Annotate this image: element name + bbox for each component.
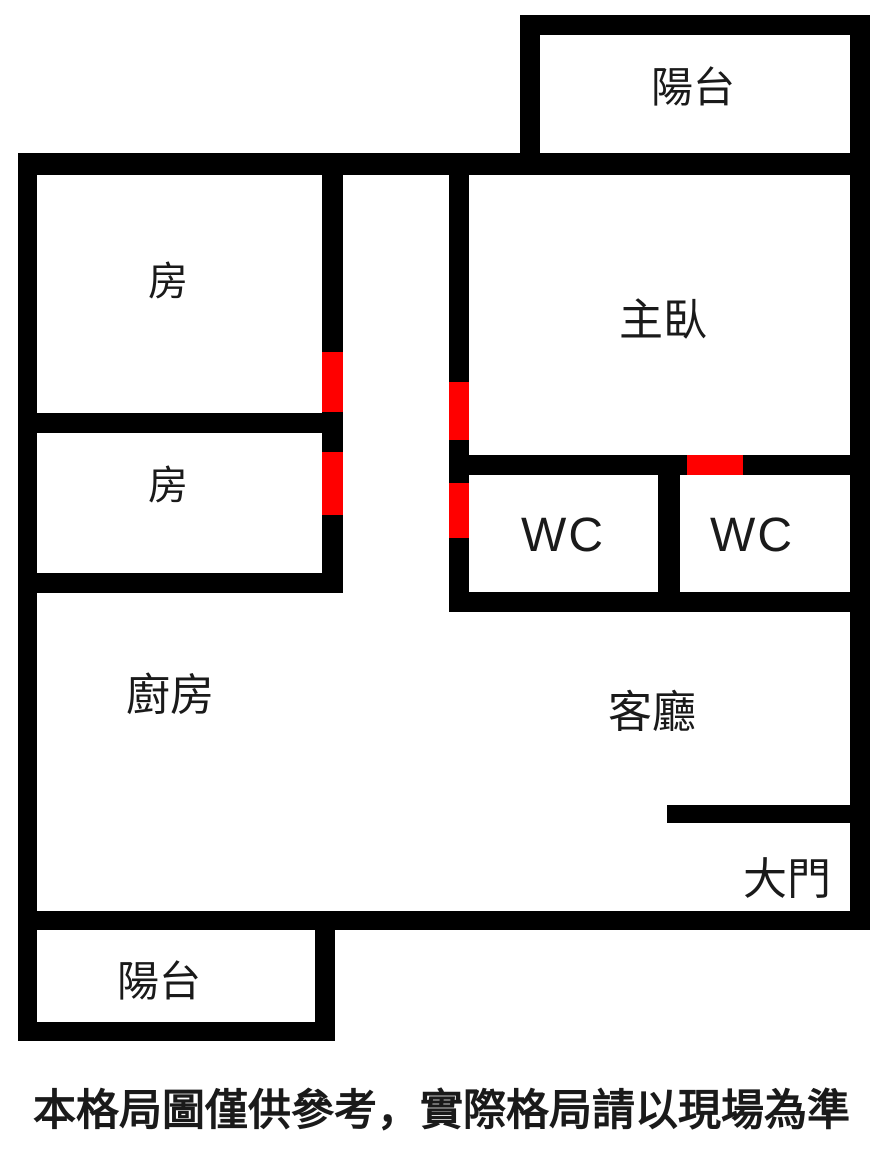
wall-outer-top [18,153,870,175]
room-label-bedroom-1: 房 [148,262,188,302]
wall-entry-stub [667,805,850,823]
wall-top-balcony-left [520,15,540,165]
room-label-bedroom-2: 房 [148,466,188,506]
wall-outer-bottom [18,911,870,930]
wall-top-balcony-top [520,15,870,35]
wall-wc-divider [658,475,680,592]
room-label-balcony-bottom: 陽台 [117,961,201,1003]
door-master-marker [449,382,469,440]
wall-bottom-balcony-bottom [18,1022,335,1041]
wall-bedrooms-divider [18,413,343,433]
room-label-kitchen: 廚房 [126,674,214,718]
room-label-wc-2: WC [710,512,794,560]
room-label-master-bedroom: 主臥 [619,299,707,343]
door-wc-1-marker [449,483,469,538]
room-label-living-room: 客廳 [608,691,696,735]
door-bedroom-2-marker [322,452,343,515]
wall-outer-left [18,153,37,1041]
wall-wc-bottom [449,592,870,612]
room-label-balcony-top: 陽台 [651,67,735,109]
room-label-wc-1: WC [521,512,605,560]
wall-bedroom2-bottom [18,573,343,593]
disclaimer-text: 本格局圖僅供參考，實際格局請以現場為準 [33,1090,850,1133]
door-bedroom-1-marker [322,352,343,412]
door-wc-2-marker [687,455,743,475]
room-label-main-door: 大門 [743,858,831,902]
floor-plan: 陽台 房 房 主臥 WC WC 廚房 客廳 大門 陽台 本格局圖僅供參考，實際格… [0,0,889,1162]
wall-master-bottom [449,455,870,475]
